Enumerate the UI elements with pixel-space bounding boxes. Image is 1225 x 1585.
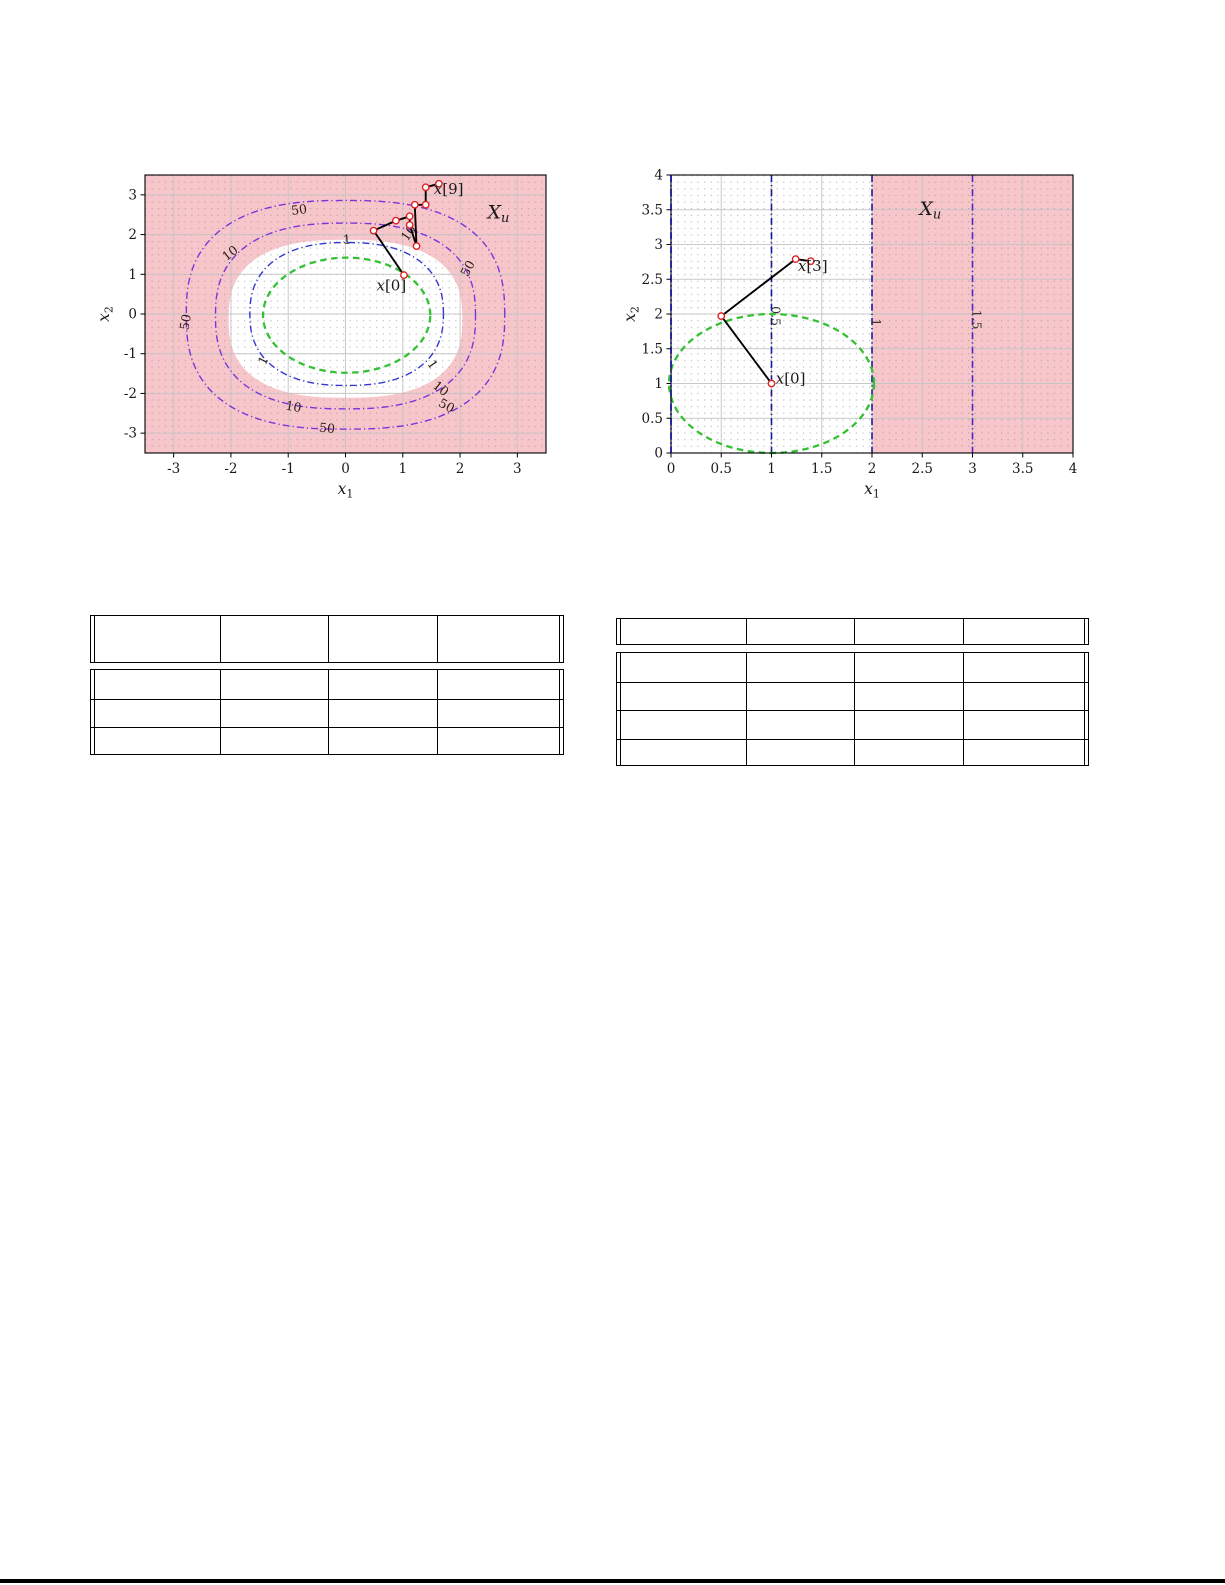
y-axis-label: x2 [95,306,116,322]
contour-label-1: 1 [342,231,351,247]
table-cell [963,739,1090,768]
table-cell [617,710,746,739]
x-tick-label: 2 [456,461,465,477]
trajectory-marker [412,202,418,208]
y-axis-label-group: x2 [95,306,116,322]
plot-right: 0.511.5x[0]x[3]Xu00.511.522.533.5400.511… [621,168,1077,501]
y-axis-label-group: x2 [621,306,642,322]
table-cell [746,710,854,739]
table-cell [220,670,328,699]
y-tick-label: -1 [124,346,137,362]
table-cell [746,653,854,682]
trajectory-point-label: x[0] [776,370,806,388]
trajectory-marker [406,222,412,228]
label-part: [9] [442,180,463,198]
plot-left: 505050505010101010111x[0]x[9]Xu-3-2-1012… [95,175,546,501]
x-tick-label: 1 [398,461,407,477]
label-part: 2 [629,306,642,313]
x-tick-label: 0 [341,461,350,477]
x-tick-label: 3 [513,461,522,477]
trajectory-point-label: x[9] [434,180,464,198]
x-tick-label: 2.5 [912,461,933,477]
left-table-header [90,615,564,663]
table-header-cell [746,619,854,646]
label-part: x [95,313,113,322]
y-tick-label: 3 [654,237,663,253]
contour-label-0.5: 0.5 [769,306,784,326]
x-tick-label: 1.5 [811,461,832,477]
trajectory-marker [370,227,376,233]
contour-label-50: 50 [176,313,194,331]
x-tick-label: -2 [224,461,237,477]
table-cell [328,699,437,728]
table-cell [437,670,565,699]
y-tick-label: 4 [654,168,663,184]
y-tick-label: 0.5 [642,411,663,427]
x-tick-label: 2 [868,461,877,477]
x-tick-label: 3.5 [1012,461,1033,477]
trajectory-marker [423,184,429,190]
page-bottom-rule [0,1579,1225,1583]
table-cell [854,739,963,768]
table-cell [746,739,854,768]
trajectory-marker [413,243,419,249]
table-header-cell [437,616,565,664]
y-tick-label: 1 [654,376,663,392]
label-part: [0] [784,370,805,388]
y-tick-label: 2 [128,227,137,243]
table-cell [617,682,746,711]
label-part: x [338,480,347,498]
trajectory-marker [393,217,399,223]
table-cell [91,699,220,728]
table-header-cell [220,616,328,664]
x-axis-label: x1 [864,480,880,501]
y-tick-label: -3 [124,426,137,442]
table-header-cell [963,619,1090,646]
table-cell [746,682,854,711]
x-tick-label: 4 [1069,461,1078,477]
x-tick-label: 1 [767,461,776,477]
figure-row: 505050505010101010111x[0]x[9]Xu-3-2-1012… [0,0,1225,560]
right-table-body [616,652,1089,766]
table-cell [854,710,963,739]
table-cell [328,670,437,699]
contour-label-10: 10 [284,398,302,416]
y-tick-label: 2 [654,307,663,323]
trajectory-point-label: x[3] [798,257,828,275]
table-cell [91,670,220,699]
table-header-cell [328,616,437,664]
contour-label-1.5: 1.5 [970,310,985,330]
label-part: 1 [873,488,880,501]
y-tick-label: 2.5 [642,272,663,288]
table-cell [963,682,1090,711]
y-tick-label: 0 [654,446,663,462]
table-cell [437,699,565,728]
y-tick-label: 0 [128,307,137,323]
table-cell [617,739,746,768]
label-part: 2 [103,306,116,313]
x-tick-label: -3 [167,461,180,477]
left-table-body [90,669,564,755]
x-tick-label: 0 [667,461,676,477]
trajectory-marker [423,202,429,208]
label-part: x [621,313,639,322]
table-cell [963,653,1090,682]
y-tick-label: 3 [128,187,137,203]
trajectory-marker [768,380,774,386]
y-tick-label: 1 [128,267,137,283]
contour-label-50: 50 [290,201,308,218]
x-tick-label: 0.5 [711,461,732,477]
table-cell [854,682,963,711]
y-axis-label: x2 [621,306,642,322]
table-cell [220,727,328,756]
label-part: [3] [806,257,827,275]
label-part: X [485,201,502,223]
label-part: x [864,480,873,498]
label-part: 1 [346,488,353,501]
table-cell [437,727,565,756]
y-tick-label: -2 [124,386,137,402]
table-header-cell [91,616,220,664]
trajectory-marker [718,313,724,319]
table-cell [617,653,746,682]
trajectory-point-label: x[0] [376,276,406,294]
label-part: [0] [385,276,406,294]
y-tick-label: 1.5 [642,341,663,357]
right-table-header [616,618,1089,645]
label-part: X [917,198,934,220]
x-tick-label: -1 [282,461,295,477]
contour-label-50: 50 [318,420,335,437]
x-tick-label: 3 [968,461,977,477]
table-cell [328,727,437,756]
y-tick-label: 3.5 [642,202,663,218]
table-cell [854,653,963,682]
table-cell [220,699,328,728]
document-page: 505050505010101010111x[0]x[9]Xu-3-2-1012… [0,0,1225,1585]
table-cell [91,727,220,756]
trajectory-marker [406,213,412,219]
table-header-cell [617,619,746,646]
table-cell [963,710,1090,739]
label-part: u [501,211,509,226]
x-axis-label: x1 [338,480,354,501]
contour-label-1: 1 [869,318,884,326]
label-part: u [933,208,941,223]
table-header-cell [854,619,963,646]
